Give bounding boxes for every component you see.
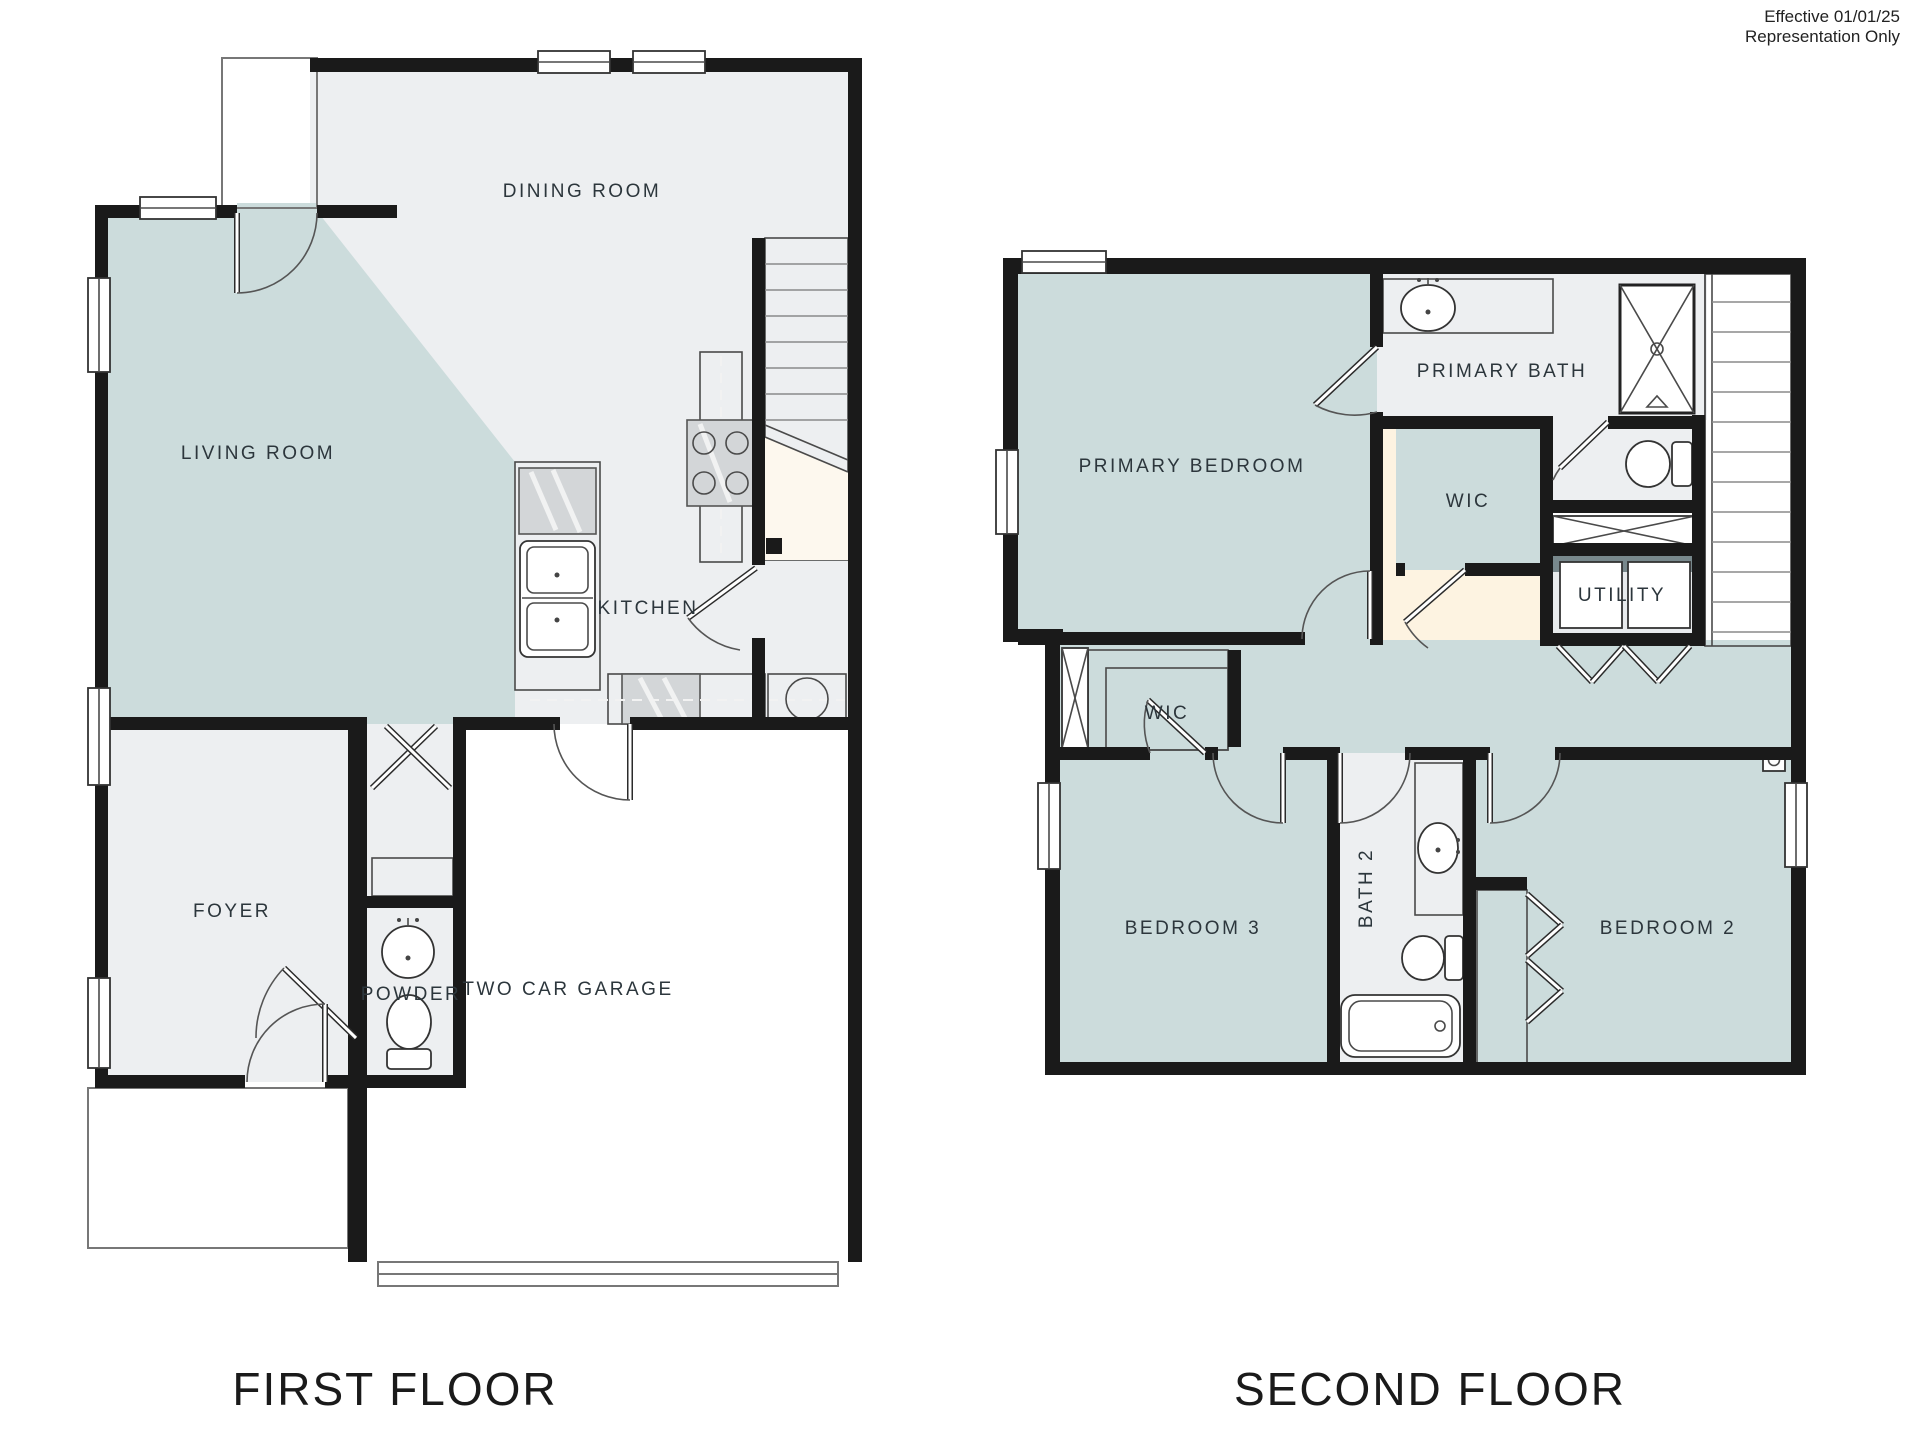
kitchen-island-sink: [520, 541, 595, 657]
primary-wic-hall-strip: [1383, 422, 1396, 650]
primary-bedroom-floor: [1012, 268, 1377, 640]
living-door-gap-floor: [237, 203, 317, 221]
island-dishwasher: [519, 468, 596, 534]
stairs-second-floor: [1705, 274, 1791, 646]
front-bumpout: [222, 58, 317, 208]
window: [88, 278, 110, 372]
range-cooktop: [687, 420, 755, 506]
window: [88, 978, 110, 1068]
bathtub: [1341, 995, 1460, 1057]
window: [996, 450, 1018, 534]
utility-label: UTILITY: [1578, 585, 1666, 606]
living-room-label: LIVING ROOM: [181, 443, 335, 464]
kitchen-label: KITCHEN: [598, 598, 699, 619]
bedroom2-floor: [1469, 753, 1794, 1065]
kitchen-island: [515, 462, 600, 690]
bedroom3-label: BEDROOM 3: [1125, 918, 1262, 939]
window: [1785, 783, 1807, 867]
window: [633, 51, 705, 73]
floor-plan-canvas: DINING ROOM LIVING ROOM KITCHEN FOYER PO…: [0, 0, 1920, 1440]
garage-label: TWO CAR GARAGE: [462, 979, 673, 1000]
window: [538, 51, 610, 73]
bath2-toilet: [1402, 936, 1463, 980]
powder-label: POWDER: [361, 984, 462, 1005]
disclaimer-line1: Effective 01/01/25: [1764, 7, 1900, 26]
bath2-label: BATH 2: [1356, 848, 1377, 928]
first-floor-plan: DINING ROOM LIVING ROOM KITCHEN FOYER PO…: [88, 51, 862, 1415]
window: [140, 197, 216, 219]
window: [1038, 783, 1060, 869]
first-floor-title: FIRST FLOOR: [232, 1363, 557, 1415]
window: [88, 688, 110, 785]
foyer-label: FOYER: [193, 901, 271, 922]
garage-door: [378, 1262, 838, 1286]
vanity-sink: [1401, 285, 1455, 331]
powder-toilet: [387, 995, 431, 1069]
linen-closet: [1553, 516, 1695, 546]
primary-bath-label: PRIMARY BATH: [1417, 361, 1587, 382]
primary-bedroom-label: PRIMARY BEDROOM: [1079, 456, 1306, 477]
second-floor-plan: PRIMARY BEDROOM PRIMARY BATH WIC WIC UTI…: [996, 251, 1807, 1415]
linen-closet-hall: [1062, 648, 1088, 748]
disclaimer: Effective 01/01/25 Representation Only: [1745, 7, 1900, 46]
primary-wic-label: WIC: [1446, 491, 1490, 512]
bedroom3-floor: [1055, 753, 1333, 1065]
porch-slab: [88, 1088, 348, 1248]
primary-toilet: [1626, 441, 1692, 487]
stair-newel-post: [766, 538, 782, 554]
disclaimer-line2: Representation Only: [1745, 27, 1900, 46]
bedroom2-label: BEDROOM 2: [1600, 918, 1737, 939]
shower: [1620, 285, 1694, 413]
second-floor-title: SECOND FLOOR: [1234, 1363, 1626, 1415]
hall-wic-label: WIC: [1145, 703, 1189, 724]
dining-room-label: DINING ROOM: [503, 181, 661, 202]
window: [1022, 251, 1106, 273]
